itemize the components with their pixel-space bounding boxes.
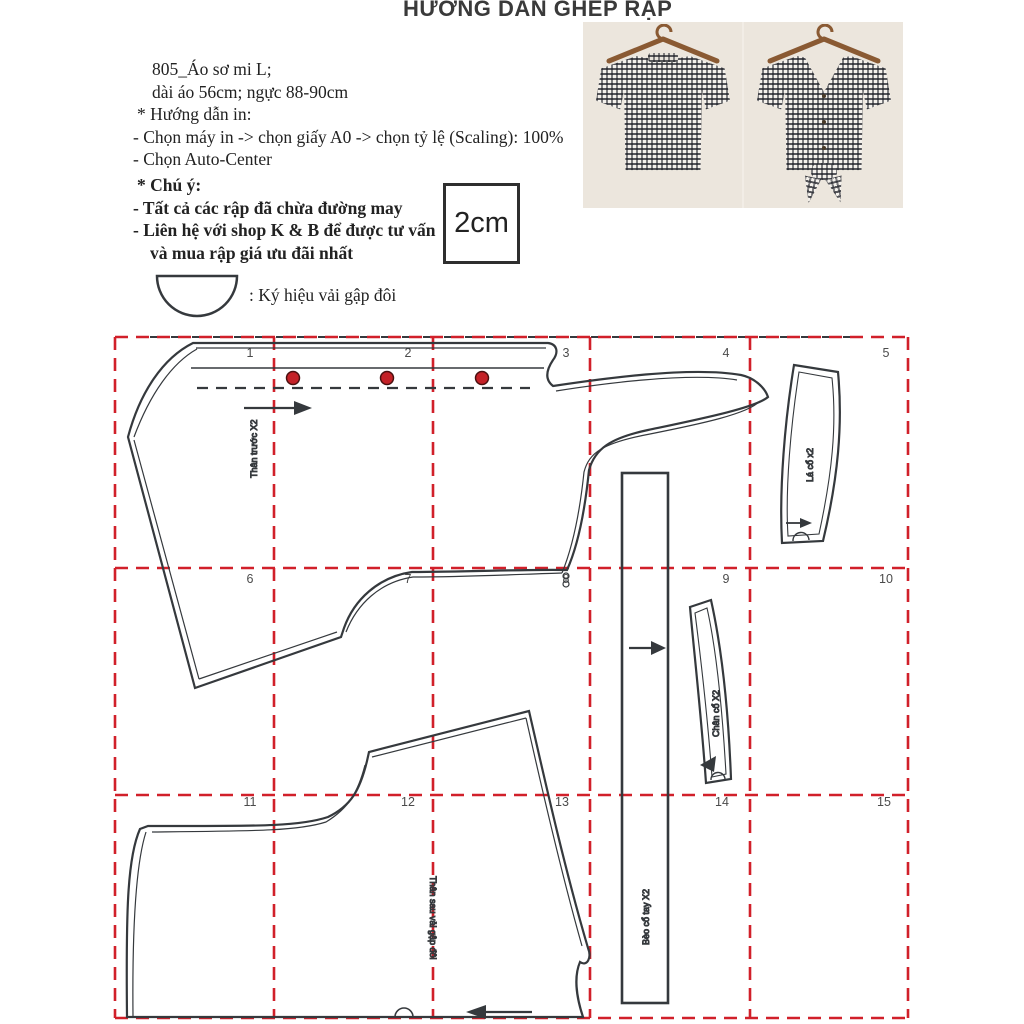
piece-label-than-truoc: Thân trước X2 xyxy=(249,420,259,478)
button-dot xyxy=(287,372,300,385)
grain-arrow-collar-stand xyxy=(700,756,716,772)
button-dot xyxy=(476,372,489,385)
grain-arrow-collar xyxy=(786,518,812,528)
grid-cell-number: 6 xyxy=(247,572,254,586)
fold-notch xyxy=(395,1008,413,1017)
piece-label-than-sau: Thân sau vải gập đôi xyxy=(428,876,438,960)
pattern-grid xyxy=(115,337,908,1018)
piece-label-beo-co-tay: Bèo cổ tay X2 xyxy=(641,889,651,945)
piece-label-la-co: Lá cổ x2 xyxy=(805,448,815,482)
pattern-collar-piece: Lá cổ x2 xyxy=(781,365,840,543)
grid-cell-number: 10 xyxy=(879,572,893,586)
grid-cell-number: 13 xyxy=(555,795,569,809)
pattern-back-piece: Thân sau vải gập đôi xyxy=(127,711,590,1019)
grid-cell-number: 9 xyxy=(723,572,730,586)
grain-arrow-cuff xyxy=(629,641,666,655)
grid-cell-number: 15 xyxy=(877,795,891,809)
grid-cell-number: 4 xyxy=(723,346,730,360)
grid-cell-number: 11 xyxy=(244,795,257,809)
pattern-collar-stand: Chân cổ X2 xyxy=(690,600,731,783)
grid-cell-number: 5 xyxy=(883,346,890,360)
fold-notch xyxy=(793,532,809,541)
grid-cell-number: 3 xyxy=(563,346,570,360)
pattern-layout: 1 2 3 4 5 6 7 8 9 10 11 12 13 14 15 xyxy=(0,0,1024,1024)
button-marks xyxy=(287,372,489,385)
pattern-instruction-sheet: HƯỚNG DẪN GHÉP RẬP 805_Áo sơ mi L; dài á… xyxy=(0,0,1024,1024)
grid-cell-number: 12 xyxy=(401,795,415,809)
grain-arrow-front xyxy=(244,401,312,415)
pattern-front-piece: Thân trước X2 xyxy=(128,343,768,688)
grid-cell-number: 14 xyxy=(715,795,729,809)
pattern-cuff-strip: Bèo cổ tay X2 xyxy=(622,473,668,1003)
button-dot xyxy=(381,372,394,385)
piece-label-chan-co: Chân cổ X2 xyxy=(711,690,721,737)
